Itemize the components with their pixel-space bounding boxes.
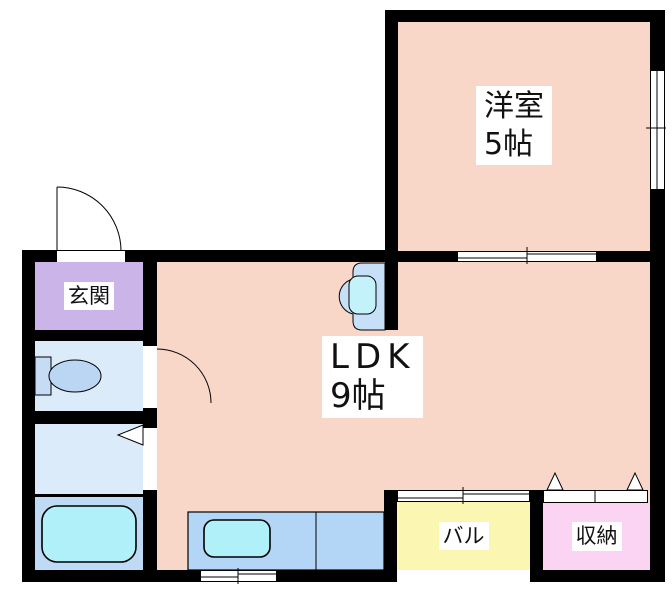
- toilet-bowl: [49, 360, 101, 392]
- western-room-name: 洋室: [484, 88, 544, 126]
- western-room-label: 洋室 5帖: [476, 86, 552, 165]
- floorplan: 玄関 バル 収納: [0, 0, 672, 594]
- ldk-label: LDK 9帖: [322, 336, 423, 418]
- storage-folding-door-right-icon: [627, 473, 643, 490]
- storage-folding-door-left-icon: [547, 473, 563, 490]
- entry-door-arc: [57, 187, 121, 251]
- kitchen-counter: [188, 512, 384, 570]
- toilet-door-arc: [157, 349, 211, 403]
- bathtub-fixture: [42, 506, 136, 562]
- kitchen-sink: [204, 520, 270, 557]
- western-room-side-window-glyph: [646, 70, 666, 190]
- washbasin-bowl: [349, 276, 376, 314]
- balcony-window-glyph: [397, 487, 530, 504]
- washbasin-fixture: [339, 263, 385, 330]
- toilet-fixture: [35, 357, 101, 395]
- floorplan-symbols: [0, 0, 672, 594]
- western-room-size: 5帖: [484, 126, 544, 164]
- ldk-name: LDK: [330, 338, 415, 377]
- western-room-sliding-window-glyph: [457, 247, 597, 264]
- washroom-folding-door-icon: [118, 425, 143, 445]
- ldk-size: 9帖: [330, 377, 415, 416]
